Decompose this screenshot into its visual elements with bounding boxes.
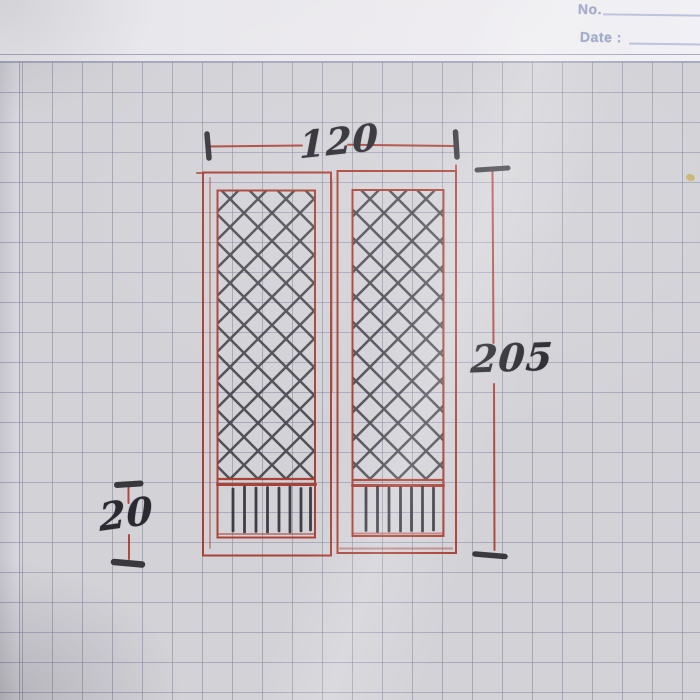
width-dim-right-tick [456, 132, 458, 157]
height-dim-bottom-tick [475, 554, 505, 557]
left-door-louver-bars [233, 487, 311, 532]
width-dim-line-left-segment [208, 146, 302, 147]
bottom-panel-dimension-label: 20 [98, 487, 154, 540]
width-dim-left-tick [207, 134, 209, 158]
panel-dim-bottom-tick [114, 562, 142, 565]
width-dimension-label: 120 [299, 115, 379, 168]
height-dimension-label: 205 [469, 333, 554, 381]
right-door-lattice-pane [353, 191, 443, 480]
pencil-louver-bars [233, 487, 434, 532]
height-dim-line-bottom-segment [494, 384, 495, 550]
door-sketch [0, 0, 700, 700]
height-dim-line-top-segment [493, 172, 494, 343]
right-door-louver-bars [366, 487, 434, 532]
panel-dim-top-tick [117, 484, 141, 486]
height-dim-top-tick [477, 168, 508, 170]
notebook-photo: No. Date : [0, 0, 700, 700]
left-door-lattice-pane [218, 191, 315, 479]
